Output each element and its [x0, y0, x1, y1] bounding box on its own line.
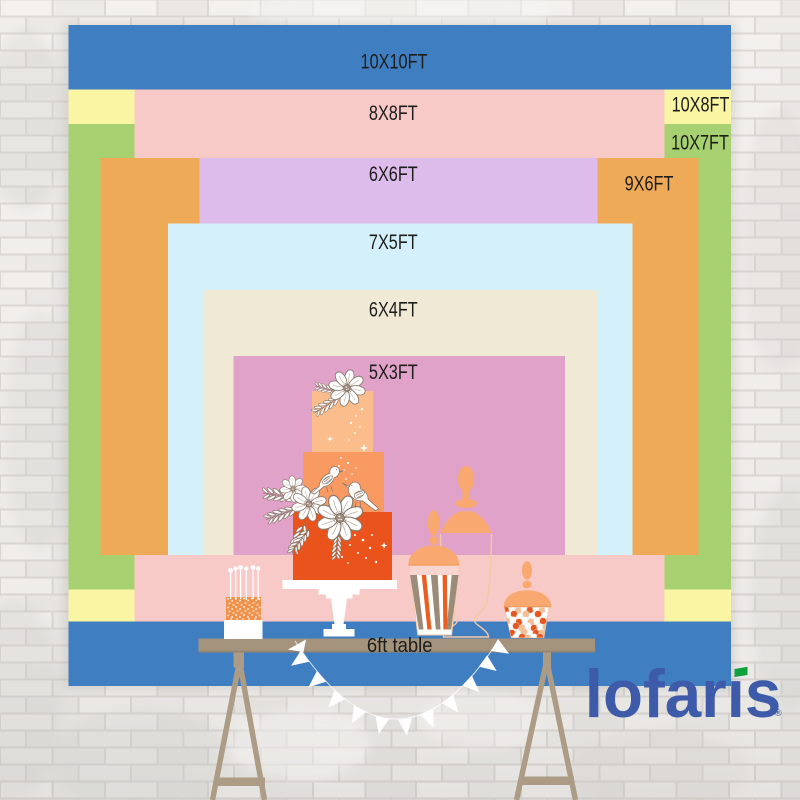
- svg-text:6X6FT: 6X6FT: [369, 163, 418, 187]
- svg-text:lofarıs: lofarıs: [585, 657, 781, 732]
- svg-text:6X4FT: 6X4FT: [369, 299, 418, 323]
- svg-text:10X8FT: 10X8FT: [672, 93, 730, 117]
- svg-text:7X5FT: 7X5FT: [369, 231, 418, 255]
- svg-text:®: ®: [775, 708, 782, 718]
- svg-text:10X7FT: 10X7FT: [671, 131, 729, 155]
- svg-text:10X10FT: 10X10FT: [361, 50, 428, 74]
- svg-text:5X3FT: 5X3FT: [369, 361, 418, 385]
- svg-text:6ft table: 6ft table: [367, 634, 433, 657]
- svg-text:8X8FT: 8X8FT: [369, 102, 418, 126]
- svg-text:9X6FT: 9X6FT: [625, 172, 674, 196]
